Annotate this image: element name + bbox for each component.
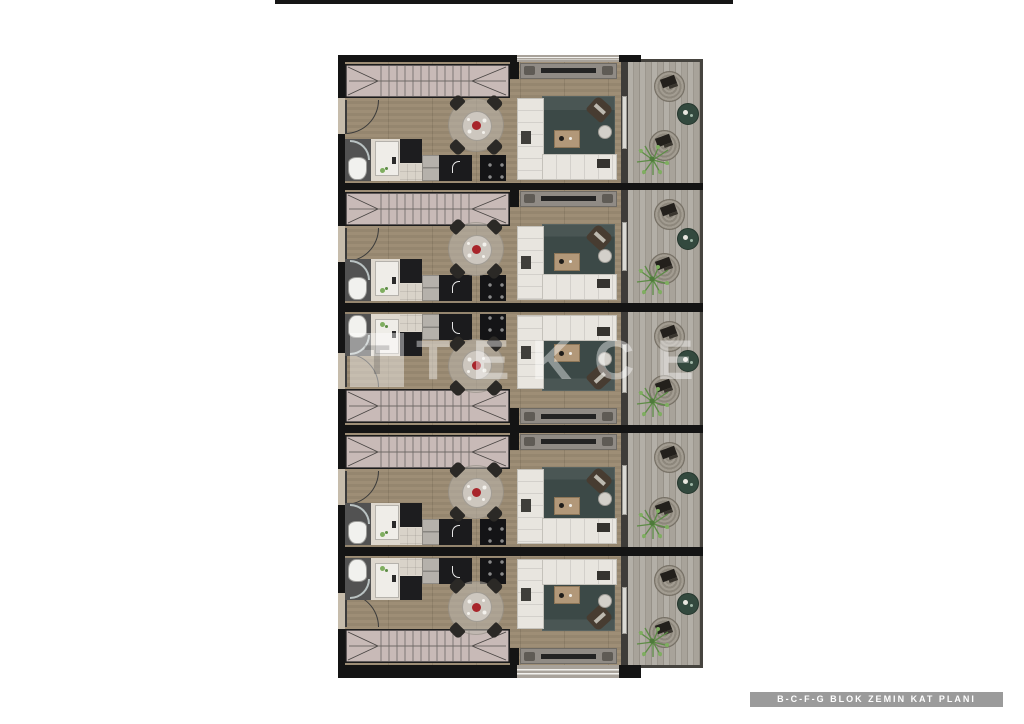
bathroom-partition-wall xyxy=(400,576,422,600)
shower-glass xyxy=(350,579,370,599)
lounge-chair xyxy=(654,321,685,352)
dining-table xyxy=(462,111,492,141)
staircase xyxy=(345,389,510,423)
potted-plant xyxy=(635,626,671,658)
wall-stub xyxy=(510,190,519,207)
bathroom-partition-wall xyxy=(400,332,422,356)
balcony xyxy=(628,190,703,303)
toilet xyxy=(348,521,367,544)
balcony-wall xyxy=(621,556,628,665)
kitchen xyxy=(422,275,510,301)
chair-cushion xyxy=(660,75,677,89)
entry-door-opening xyxy=(338,353,345,389)
potted-plant xyxy=(635,264,671,296)
wall-segment xyxy=(619,55,641,62)
staircase xyxy=(345,64,510,98)
kitchen xyxy=(422,519,510,545)
facade-wall xyxy=(338,665,703,678)
kitchen xyxy=(422,314,510,340)
window-band xyxy=(517,55,619,62)
balcony-wall xyxy=(621,312,628,425)
balcony-edge xyxy=(700,312,703,425)
entry-door-opening xyxy=(338,98,345,134)
balcony-table xyxy=(677,593,699,615)
apartment-unit-5 xyxy=(338,556,703,665)
coffee-table xyxy=(554,253,580,271)
bathroom xyxy=(345,558,422,600)
potted-plant xyxy=(635,386,671,418)
bathroom xyxy=(345,314,422,356)
lounge-chair xyxy=(654,442,685,473)
coffee-table xyxy=(554,344,580,362)
sofa xyxy=(517,226,544,300)
sliding-door xyxy=(622,465,627,515)
tv-console xyxy=(520,434,617,450)
dining-area xyxy=(448,222,504,276)
bathroom-partition-wall xyxy=(400,259,422,283)
wall-stub xyxy=(510,408,519,425)
apartment-unit-2 xyxy=(338,190,703,303)
balcony-parapet-line xyxy=(641,665,703,668)
floor-plan xyxy=(338,55,703,678)
sofa-chaise xyxy=(542,154,617,180)
tile-floor xyxy=(400,558,422,575)
tv-screen xyxy=(541,414,596,419)
balcony xyxy=(628,62,703,183)
wall-segment xyxy=(338,303,641,312)
potted-plant xyxy=(635,144,671,176)
sofa xyxy=(517,315,544,389)
sofa xyxy=(517,469,544,544)
party-wall xyxy=(338,547,703,556)
potted-plant xyxy=(635,508,671,540)
sofa-chaise xyxy=(542,559,617,585)
wall-segment xyxy=(338,665,517,678)
tv-screen xyxy=(541,68,596,73)
balcony xyxy=(628,312,703,425)
balcony xyxy=(628,556,703,665)
stove xyxy=(480,155,506,181)
unit-interior xyxy=(338,433,628,547)
window-band xyxy=(517,665,619,678)
dining-area xyxy=(448,339,504,393)
coffee-table xyxy=(554,130,580,148)
kitchen xyxy=(422,155,510,181)
kitchen-sink-counter xyxy=(439,275,472,301)
unit-interior xyxy=(338,556,628,665)
balcony-wall xyxy=(621,433,628,547)
tile-floor xyxy=(400,284,422,301)
chair-cushion xyxy=(660,446,677,460)
sofa xyxy=(517,98,544,180)
party-wall xyxy=(338,425,703,433)
sliding-door xyxy=(622,96,627,149)
kitchen-sink-counter xyxy=(439,519,472,545)
balcony-wall xyxy=(621,190,628,303)
wall-stub xyxy=(510,433,519,450)
sofa-chaise xyxy=(542,518,617,544)
wall-segment xyxy=(338,55,517,62)
toilet xyxy=(348,315,367,338)
tv-console xyxy=(520,191,617,207)
balcony-edge xyxy=(700,62,703,183)
toilet xyxy=(348,559,367,582)
bathroom xyxy=(345,259,422,301)
balcony-parapet xyxy=(641,55,703,62)
unit-interior xyxy=(338,312,628,425)
side-table xyxy=(598,249,612,263)
wall-stub xyxy=(510,62,519,79)
tile-floor xyxy=(400,164,422,181)
tv-console xyxy=(520,648,617,664)
apartment-unit-3 xyxy=(338,312,703,425)
coffee-table xyxy=(554,586,580,604)
sofa-chaise xyxy=(542,315,617,341)
sofa xyxy=(517,559,544,629)
sofa-chaise xyxy=(542,274,617,300)
dining-table xyxy=(462,235,492,265)
side-table xyxy=(598,125,612,139)
bathroom xyxy=(345,503,422,545)
wall-segment xyxy=(641,547,703,556)
balcony-edge xyxy=(700,556,703,665)
dining-area xyxy=(448,465,504,519)
wall-segment xyxy=(641,183,703,190)
sliding-door xyxy=(622,344,627,394)
bathroom-sink xyxy=(375,563,399,598)
tv-screen xyxy=(541,654,596,659)
tv-console xyxy=(520,408,617,424)
shower-glass xyxy=(350,335,370,355)
entry-door-opening xyxy=(338,593,345,629)
balcony-wall xyxy=(621,62,628,183)
tile-floor xyxy=(400,528,422,545)
unit-interior xyxy=(338,190,628,303)
unit-interior xyxy=(338,62,628,183)
bathroom-sink xyxy=(375,505,399,540)
wall-segment xyxy=(641,425,703,433)
adjacent-block-wall xyxy=(275,0,733,4)
facade-wall xyxy=(338,55,703,62)
bathroom-sink xyxy=(375,141,399,176)
dining-area xyxy=(448,98,504,152)
toilet xyxy=(348,277,367,300)
staircase xyxy=(345,435,510,469)
wall-segment xyxy=(619,665,641,678)
entry-door-opening xyxy=(338,469,345,505)
wall-stub xyxy=(510,648,519,665)
plan-caption: B-C-F-G BLOK ZEMIN KAT PLANI xyxy=(750,692,1003,707)
wall-segment xyxy=(338,183,641,190)
dining-area xyxy=(448,581,504,635)
entry-door-opening xyxy=(338,226,345,262)
coffee-table xyxy=(554,497,580,515)
balcony-parapet xyxy=(641,665,703,678)
apartment-unit-1 xyxy=(338,62,703,183)
lounge-chair xyxy=(654,71,685,102)
bathroom-sink xyxy=(375,319,399,354)
tile-floor xyxy=(400,314,422,331)
lounge-chair xyxy=(654,199,685,230)
balcony-edge xyxy=(700,190,703,303)
balcony xyxy=(628,433,703,547)
sliding-door xyxy=(622,222,627,272)
bathroom xyxy=(345,139,422,181)
balcony-table xyxy=(677,472,699,494)
wall-segment xyxy=(641,303,703,312)
bathroom-partition-wall xyxy=(400,139,422,163)
apartment-unit-4 xyxy=(338,433,703,547)
bathroom-partition-wall xyxy=(400,503,422,527)
chair-cushion xyxy=(660,569,677,583)
party-wall xyxy=(338,183,703,190)
party-wall xyxy=(338,303,703,312)
stove xyxy=(480,519,506,545)
kitchen-sink-counter xyxy=(439,155,472,181)
tv-screen xyxy=(541,439,596,444)
wall-segment xyxy=(338,425,641,433)
tv-screen xyxy=(541,196,596,201)
toilet xyxy=(348,157,367,180)
chair-cushion xyxy=(660,325,677,339)
lounge-chair xyxy=(654,565,685,596)
chair-cushion xyxy=(660,203,677,217)
tv-console xyxy=(520,63,617,79)
balcony-table xyxy=(677,103,699,125)
bathroom-sink xyxy=(375,261,399,296)
balcony-edge xyxy=(700,433,703,547)
sliding-door xyxy=(622,587,627,635)
wall-segment xyxy=(338,547,641,556)
